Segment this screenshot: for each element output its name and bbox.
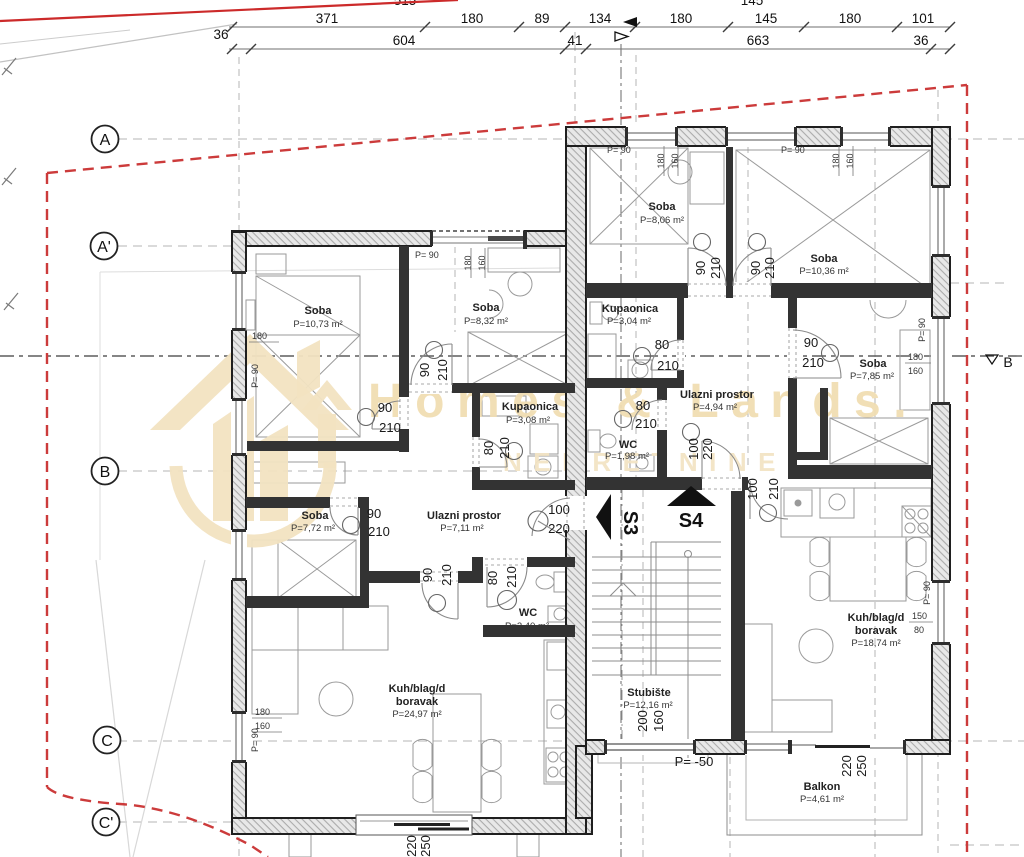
svg-text:S4: S4 (679, 510, 704, 532)
svg-text:boravak: boravak (855, 625, 898, 637)
svg-text:160: 160 (908, 366, 923, 376)
svg-text:220: 220 (548, 521, 570, 536)
svg-text:P= 90: P= 90 (607, 145, 631, 155)
svg-text:Soba: Soba (860, 358, 888, 370)
svg-text:89: 89 (534, 11, 549, 26)
svg-text:36: 36 (913, 33, 928, 48)
svg-text:100: 100 (686, 438, 701, 460)
svg-text:160: 160 (670, 153, 680, 168)
svg-text:P=10,73 m²: P=10,73 m² (293, 319, 342, 330)
svg-text:P= 90: P= 90 (781, 145, 805, 155)
svg-text:C: C (101, 733, 113, 750)
svg-text:180: 180 (461, 11, 484, 26)
svg-text:200: 200 (635, 710, 650, 732)
svg-text:P=10,36 m²: P=10,36 m² (799, 266, 848, 277)
svg-text:P=8,06 m²: P=8,06 m² (640, 215, 684, 226)
svg-text:145: 145 (741, 0, 764, 8)
svg-text:210: 210 (439, 564, 454, 586)
svg-text:90: 90 (748, 261, 763, 275)
svg-text:P=8,32 m²: P=8,32 m² (464, 316, 508, 327)
svg-text:P= 90: P= 90 (250, 364, 260, 388)
svg-text:Soba: Soba (811, 253, 839, 265)
svg-text:P= 90: P= 90 (922, 581, 932, 605)
svg-text:180: 180 (831, 153, 841, 168)
svg-text:P=18,74 m²: P=18,74 m² (851, 638, 900, 649)
svg-text:210: 210 (368, 524, 390, 539)
svg-text:210: 210 (435, 359, 450, 381)
svg-text:180: 180 (670, 11, 693, 26)
svg-text:P=12,16 m²: P=12,16 m² (623, 700, 672, 711)
svg-text:P=3,08 m²: P=3,08 m² (506, 415, 550, 426)
svg-text:P= 90: P= 90 (415, 250, 439, 260)
svg-text:Ulazni prostor: Ulazni prostor (427, 510, 502, 522)
svg-text:90: 90 (378, 400, 392, 415)
svg-text:Kupaonica: Kupaonica (502, 401, 559, 413)
svg-text:210: 210 (802, 355, 824, 370)
svg-text:180: 180 (656, 153, 666, 168)
svg-text:B: B (100, 464, 111, 481)
svg-text:Soba: Soba (473, 302, 501, 314)
svg-text:Soba: Soba (302, 510, 330, 522)
svg-text:90: 90 (417, 363, 432, 377)
svg-text:P=4,61 m²: P=4,61 m² (800, 794, 844, 805)
svg-text:C': C' (99, 815, 114, 832)
svg-text:210: 210 (497, 437, 512, 459)
svg-text:371: 371 (316, 11, 339, 26)
svg-text:134: 134 (589, 11, 612, 26)
svg-text:Kupaonica: Kupaonica (602, 303, 659, 315)
svg-text:P= 90: P= 90 (250, 728, 260, 752)
svg-text:180: 180 (252, 331, 267, 341)
svg-text:210: 210 (766, 478, 781, 500)
svg-text:Ulazni prostor: Ulazni prostor (680, 389, 755, 401)
svg-text:220: 220 (700, 438, 715, 460)
svg-text:P=7,11 m²: P=7,11 m² (440, 523, 483, 534)
svg-text:A: A (100, 132, 111, 149)
svg-text:B: B (1003, 354, 1012, 370)
svg-text:210: 210 (708, 257, 723, 279)
svg-text:210: 210 (379, 420, 401, 435)
svg-text:41: 41 (567, 33, 582, 48)
svg-text:P=1,98 m²: P=1,98 m² (605, 451, 649, 462)
svg-text:180: 180 (463, 255, 473, 270)
svg-text:210: 210 (635, 416, 657, 431)
svg-text:90: 90 (367, 506, 381, 521)
svg-text:80: 80 (636, 398, 650, 413)
svg-text:36: 36 (213, 27, 228, 42)
svg-text:663: 663 (747, 33, 770, 48)
svg-text:90: 90 (804, 335, 818, 350)
svg-text:80: 80 (485, 571, 500, 585)
svg-text:Stubište: Stubište (627, 687, 670, 699)
svg-text:Kuh/blag/d: Kuh/blag/d (389, 683, 446, 695)
svg-text:210: 210 (657, 358, 679, 373)
svg-text:P= 90: P= 90 (917, 318, 927, 342)
svg-text:250: 250 (854, 755, 869, 777)
svg-text:100: 100 (548, 502, 570, 517)
svg-text:Soba: Soba (649, 201, 677, 213)
svg-text:WC: WC (619, 439, 637, 451)
svg-text:160: 160 (477, 255, 487, 270)
svg-text:160: 160 (651, 710, 666, 732)
svg-text:P=7,85 m²: P=7,85 m² (850, 371, 894, 382)
svg-text:P=7,72 m²: P=7,72 m² (291, 523, 335, 534)
svg-text:Soba: Soba (305, 305, 333, 317)
svg-text:80: 80 (914, 625, 924, 635)
svg-text:220: 220 (404, 835, 419, 857)
svg-text:P=4,94 m²: P=4,94 m² (693, 402, 737, 413)
svg-text:101: 101 (912, 11, 935, 26)
svg-text:Balkon: Balkon (804, 781, 841, 793)
svg-text:100: 100 (745, 478, 760, 500)
svg-text:P=24,97 m²: P=24,97 m² (392, 709, 441, 720)
svg-text:P=3,04 m²: P=3,04 m² (607, 316, 651, 327)
svg-text:604: 604 (393, 33, 416, 48)
svg-text:210: 210 (504, 566, 519, 588)
svg-text:150: 150 (912, 611, 927, 621)
svg-text:80: 80 (655, 337, 669, 352)
svg-text:90: 90 (693, 261, 708, 275)
svg-text:80: 80 (481, 441, 496, 455)
svg-text:boravak: boravak (396, 696, 439, 708)
svg-text:180: 180 (255, 707, 270, 717)
svg-text:160: 160 (845, 153, 855, 168)
svg-text:250: 250 (418, 835, 433, 857)
svg-text:90: 90 (420, 568, 435, 582)
svg-text:Kuh/blag/d: Kuh/blag/d (848, 612, 905, 624)
svg-text:180: 180 (908, 352, 923, 362)
svg-text:145: 145 (755, 11, 778, 26)
svg-text:S3: S3 (619, 511, 641, 535)
svg-text:220: 220 (839, 755, 854, 777)
svg-text:180: 180 (839, 11, 862, 26)
svg-text:WC: WC (519, 607, 537, 619)
svg-text:210: 210 (762, 257, 777, 279)
svg-text:P= -50: P= -50 (675, 754, 714, 769)
svg-text:A': A' (97, 239, 111, 256)
